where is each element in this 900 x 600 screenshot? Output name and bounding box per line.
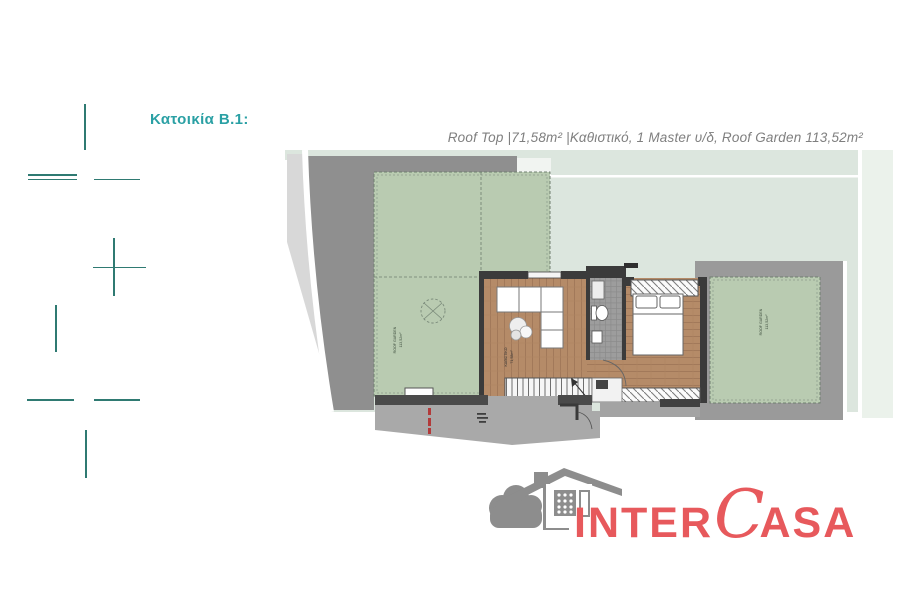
terrace: [375, 395, 700, 445]
shower: [592, 281, 604, 299]
living-room-label: ΚΑΘΙΣΤΙΚΟ: [504, 347, 508, 366]
logo-text-c: C: [714, 489, 765, 542]
living-room-label: 71,58m²: [510, 350, 514, 364]
sink: [592, 331, 602, 343]
garden-right-label: ROOF GARDEN: [759, 308, 763, 335]
garden-left-label: ROOF GARDEN: [393, 326, 397, 353]
toilet: [596, 306, 608, 321]
logo-wordmark: INTER C ASA: [574, 489, 856, 548]
red-annotation: [428, 408, 431, 434]
building: ΚΑΘΙΣΤΙΚΟ 71,58m²: [479, 263, 707, 403]
garden-right-label: 113,52m²: [765, 314, 769, 330]
logo: INTER C ASA: [488, 456, 868, 540]
logo-text-asa: ASA: [760, 499, 857, 548]
logo-text-inter: INTER: [574, 499, 713, 548]
right-garden-zone: ROOF GARDEN 113,52m²: [695, 261, 847, 420]
bathroom: [590, 278, 623, 360]
page: Κατοικία B.1: Roof Top |71,58m² |Καθιστι…: [0, 0, 900, 600]
garden-left-label: 113,52m²: [399, 332, 403, 348]
bed: [633, 294, 683, 355]
